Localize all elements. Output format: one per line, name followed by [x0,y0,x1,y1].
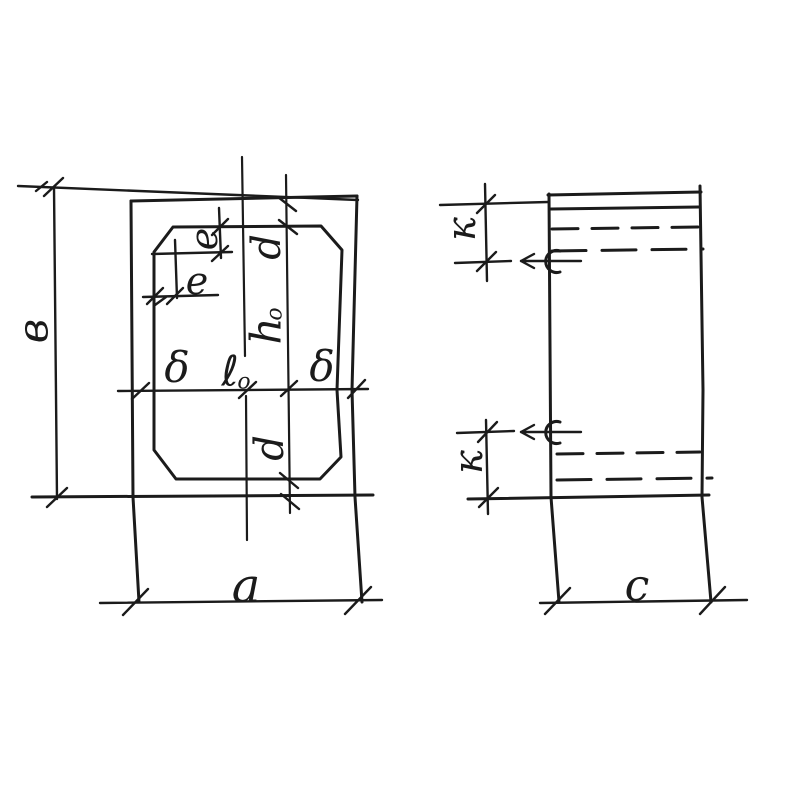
d-bottom-dim-label: d [247,435,293,461]
side-bottom-edge [468,495,709,499]
side-top-edge [548,192,701,195]
outer-rectangle-left-edge [131,201,139,602]
l0-subscript: o [237,370,250,395]
a-dim-label: a [232,558,261,614]
c-dim-label: c [625,561,650,612]
k-top-dimension-line [485,184,487,281]
hidden-line-bottom-2 [557,478,712,480]
l0-main: ℓ [220,347,238,396]
hidden-line-bottom-1 [557,452,700,454]
h0-subscript: o [263,307,288,320]
k-top-extension-lower [455,261,511,263]
outer-rectangle-bottom-edge [32,495,373,497]
drawing-canvas: в e e d d h o ℓ o δ δ a [0,0,800,800]
vertical-center-line [242,157,247,540]
hidden-line-top-2 [552,249,703,251]
side-top-inner-edge [551,207,699,209]
delta-right-dim-label: δ [309,342,334,391]
side-left-edge [549,194,559,602]
d-top-dim-label: d [244,234,290,260]
side-view: к к c [439,184,747,614]
technical-drawing: в e e d d h o ℓ o δ δ a [0,0,800,800]
e-horizontal-dim-label: e [186,259,209,303]
k-top-extension-upper [440,202,548,205]
k-bottom-dim-label: к [446,450,492,474]
outer-rectangle-right-edge [352,196,362,602]
hook-axis-arrow [521,254,581,268]
k-top-dim-label: к [439,217,485,241]
lifting-hook-bottom [521,422,581,444]
l0-dim-label: ℓ o [220,347,250,396]
h0-dim-label: h o [242,307,291,344]
plan-view: в e e d d h o ℓ o δ δ a [9,157,383,615]
e-horizontal-extension-line [175,240,177,298]
lifting-hook-top [521,251,581,273]
e-vertical-dim-label: e [182,228,226,251]
hidden-line-top-1 [552,227,698,229]
delta-left-dim-label: δ [164,343,189,392]
b-dim-label: в [9,319,58,343]
